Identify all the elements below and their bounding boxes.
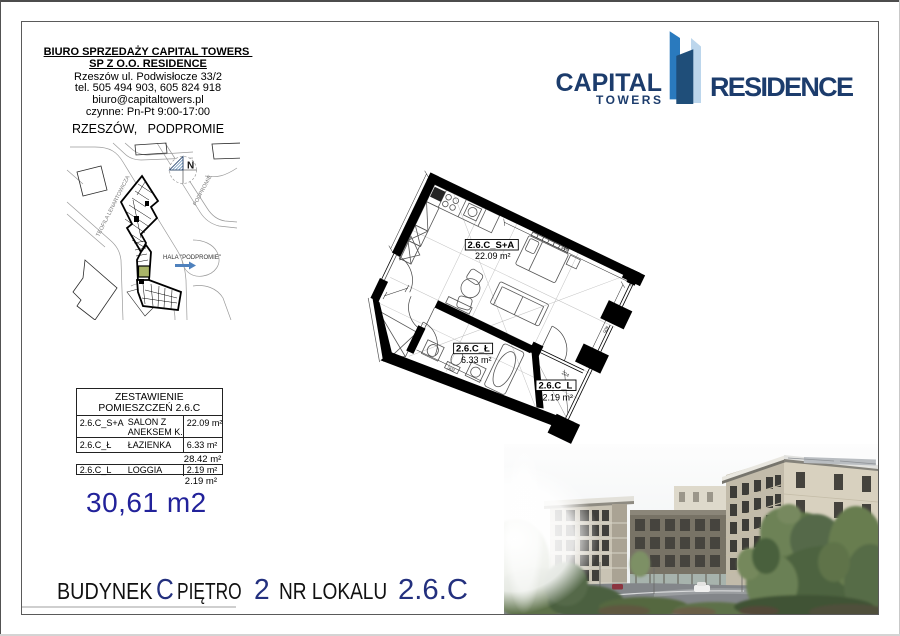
- svg-text:N: N: [187, 161, 194, 172]
- svg-text:TOWERS: TOWERS: [596, 93, 663, 107]
- svg-text:2.19 m²: 2.19 m²: [543, 393, 574, 403]
- svg-text:HALA "PODPROMIE": HALA "PODPROMIE": [163, 255, 221, 261]
- svg-text:2.6.C_L: 2.6.C_L: [539, 381, 573, 392]
- svg-text:2.6.C_S+A: 2.6.C_S+A: [468, 240, 515, 251]
- svg-text:224: 224: [561, 370, 570, 378]
- svg-text:RESIDENCE: RESIDENCE: [710, 72, 854, 102]
- svg-text:2.6.C_Ł: 2.6.C_Ł: [456, 344, 490, 355]
- svg-text:302: 302: [447, 365, 456, 373]
- svg-text:22.09 m²: 22.09 m²: [475, 251, 511, 261]
- svg-text:6.33 m²: 6.33 m²: [461, 355, 492, 365]
